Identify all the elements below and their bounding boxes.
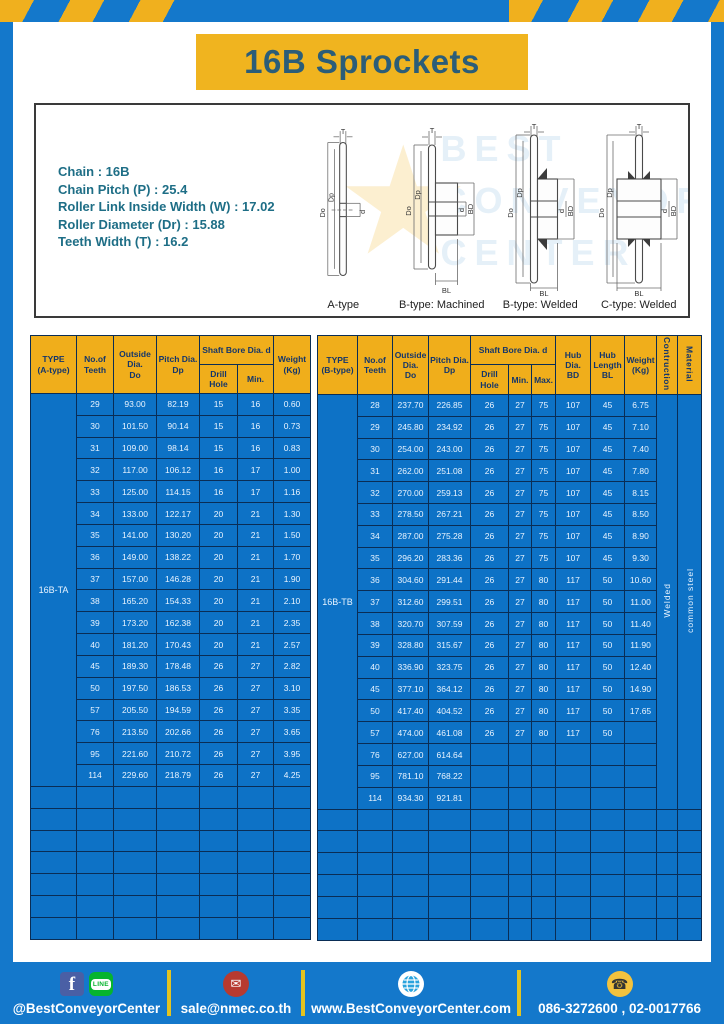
- table-cell: [77, 830, 114, 852]
- table-cell: 194.59: [157, 699, 200, 721]
- table-cell: 21: [238, 568, 274, 590]
- table-cell: [625, 809, 657, 831]
- table-cell: [274, 896, 311, 918]
- table-cell: 45: [358, 678, 393, 700]
- table-cell: [591, 853, 625, 875]
- table-cell: [429, 896, 471, 918]
- table-cell: 117: [556, 656, 591, 678]
- table-cell: 117: [556, 678, 591, 700]
- table-cell: 45: [591, 460, 625, 482]
- table-cell: 45: [591, 482, 625, 504]
- svg-text:Do: Do: [597, 208, 606, 218]
- table-cell: [471, 831, 509, 853]
- svg-text:BD: BD: [566, 205, 575, 216]
- table-cell: 75: [532, 547, 556, 569]
- table-cell: [429, 875, 471, 897]
- table-cell: 45: [591, 525, 625, 547]
- table-cell: 45: [591, 416, 625, 438]
- col-header-min: Min.: [509, 365, 532, 394]
- table-cell: 107: [556, 438, 591, 460]
- table-cell: 474.00: [393, 722, 429, 744]
- svg-text:T: T: [532, 122, 537, 131]
- table-cell: 38: [77, 590, 114, 612]
- table-cell: 16: [200, 481, 238, 503]
- table-cell: 90.14: [157, 415, 200, 437]
- table-cell: 50: [591, 591, 625, 613]
- table-cell: [114, 896, 157, 918]
- table-cell: 26: [471, 613, 509, 635]
- a-type-table-body: 16B-TA2993.0082.1915160.6030101.5090.141…: [31, 394, 311, 940]
- globe-icon: [398, 971, 424, 997]
- footer-divider: [301, 970, 305, 1016]
- table-cell: [157, 874, 200, 896]
- table-cell: 27: [509, 482, 532, 504]
- table-cell: [532, 853, 556, 875]
- table-row: 39328.80315.672627801175011.90: [318, 634, 702, 656]
- table-cell: 50: [591, 722, 625, 744]
- footer-divider: [167, 970, 171, 1016]
- catalog-page: 16B Sprockets ★ BEST CONVEYOR CENTER Cha…: [0, 0, 724, 1024]
- table-cell: 270.00: [393, 482, 429, 504]
- table-cell: [556, 918, 591, 940]
- col-header-teeth: No.of Teeth: [77, 336, 114, 394]
- table-cell: [358, 896, 393, 918]
- table-cell: [238, 808, 274, 830]
- table-cell: 254.00: [393, 438, 429, 460]
- table-cell: 28: [358, 394, 393, 416]
- empty-row: [318, 809, 702, 831]
- table-cell: 117: [556, 569, 591, 591]
- table-cell: [157, 808, 200, 830]
- table-cell: [31, 830, 77, 852]
- table-cell: [274, 874, 311, 896]
- table-cell: 27: [509, 722, 532, 744]
- table-cell: 8.15: [625, 482, 657, 504]
- table-cell: 80: [532, 634, 556, 656]
- col-header-max: Max.: [532, 365, 556, 394]
- table-cell: 117: [556, 591, 591, 613]
- table-cell: 781.10: [393, 765, 429, 787]
- table-cell: 130.20: [157, 524, 200, 546]
- table-cell: 15: [200, 415, 238, 437]
- table-cell: 107: [556, 525, 591, 547]
- table-cell: 2.82: [274, 655, 311, 677]
- empty-row: [31, 808, 311, 830]
- col-header-weight: Weight (Kg): [625, 336, 657, 395]
- table-row: 34287.00275.28262775107458.90: [318, 525, 702, 547]
- b-type-table-header: TYPE (B-type) No.of Teeth Outside Dia. D…: [318, 336, 702, 395]
- table-cell: [358, 831, 393, 853]
- table-cell: 26: [471, 678, 509, 700]
- table-row: 33278.50267.21262775107458.50: [318, 504, 702, 526]
- table-cell: 50: [591, 678, 625, 700]
- table-cell: [471, 918, 509, 940]
- table-cell: 107: [556, 482, 591, 504]
- table-cell: 117: [556, 722, 591, 744]
- table-row: 40336.90323.752627801175012.40: [318, 656, 702, 678]
- table-cell: 259.13: [429, 482, 471, 504]
- table-cell: 45: [591, 438, 625, 460]
- table-cell: 377.10: [393, 678, 429, 700]
- table-cell: 21: [238, 634, 274, 656]
- table-cell: 117: [556, 700, 591, 722]
- table-cell: [200, 786, 238, 808]
- table-cell: 20: [200, 590, 238, 612]
- table-cell: 10.60: [625, 569, 657, 591]
- empty-row: [31, 874, 311, 896]
- table-cell: [625, 918, 657, 940]
- table-cell: [157, 830, 200, 852]
- table-cell: 245.80: [393, 416, 429, 438]
- table-cell: 27: [509, 460, 532, 482]
- table-cell: [31, 852, 77, 874]
- table-cell: 75: [532, 416, 556, 438]
- table-cell: 107: [556, 416, 591, 438]
- table-cell: 26: [471, 547, 509, 569]
- table-cell: 27: [509, 504, 532, 526]
- table-cell: 16: [238, 437, 274, 459]
- table-cell: 2.10: [274, 590, 311, 612]
- table-cell: 133.00: [114, 503, 157, 525]
- construction-label: Welded: [657, 394, 678, 809]
- table-cell: [591, 809, 625, 831]
- facebook-icon: f: [60, 972, 84, 996]
- table-cell: 14.90: [625, 678, 657, 700]
- table-cell: [509, 853, 532, 875]
- table-cell: 0.83: [274, 437, 311, 459]
- table-cell: [532, 787, 556, 809]
- table-cell: 1.00: [274, 459, 311, 481]
- table-cell: [678, 896, 702, 918]
- table-cell: 50: [358, 700, 393, 722]
- svg-text:d: d: [457, 208, 466, 212]
- table-cell: [358, 918, 393, 940]
- table-cell: 109.00: [114, 437, 157, 459]
- table-cell: 39: [358, 634, 393, 656]
- table-cell: 27: [509, 656, 532, 678]
- table-cell: 117: [556, 613, 591, 635]
- table-cell: 229.60: [114, 765, 157, 787]
- table-cell: 27: [509, 416, 532, 438]
- table-cell: 15: [200, 394, 238, 416]
- title-banner: 16B Sprockets: [196, 34, 528, 90]
- table-cell: 80: [532, 678, 556, 700]
- empty-row: [318, 831, 702, 853]
- table-cell: [77, 874, 114, 896]
- table-row: 32270.00259.13262775107458.15: [318, 482, 702, 504]
- table-cell: 27: [238, 655, 274, 677]
- table-cell: 117.00: [114, 459, 157, 481]
- table-cell: 267.21: [429, 504, 471, 526]
- col-header-outside-dia: Outside Dia. Do: [114, 336, 157, 394]
- table-cell: 57: [358, 722, 393, 744]
- table-cell: [358, 809, 393, 831]
- table-cell: [509, 809, 532, 831]
- diagram-b-type-welded: T Do Dp d: [491, 105, 590, 316]
- table-cell: 40: [358, 656, 393, 678]
- hazard-stripe-band: [0, 0, 724, 22]
- col-header-drill-hole: Drill Hole: [200, 365, 238, 394]
- table-cell: 26: [471, 416, 509, 438]
- table-cell: 93.00: [114, 394, 157, 416]
- table-row: 31262.00251.08262775107457.80: [318, 460, 702, 482]
- table-cell: [31, 786, 77, 808]
- table-cell: [31, 917, 77, 939]
- table-cell: 934.30: [393, 787, 429, 809]
- table-cell: 20: [200, 546, 238, 568]
- table-cell: 11.90: [625, 634, 657, 656]
- table-cell: 21: [238, 612, 274, 634]
- svg-text:Do: Do: [506, 208, 515, 218]
- table-cell: 57: [77, 699, 114, 721]
- table-cell: 162.38: [157, 612, 200, 634]
- table-cell: 40: [77, 634, 114, 656]
- svg-text:T: T: [636, 122, 641, 131]
- table-cell: 27: [509, 591, 532, 613]
- table-cell: 76: [77, 721, 114, 743]
- table-cell: 26: [200, 743, 238, 765]
- contact-footer: f LINE @BestConveyorCenter ✉ sale@nmec.c…: [0, 962, 724, 1024]
- b-type-table-body: 16B-TB28237.70226.85262775107456.75Welde…: [318, 394, 702, 940]
- phone-numbers: 086-3272600 , 02-0017766: [538, 1001, 701, 1016]
- empty-row: [318, 896, 702, 918]
- table-cell: [238, 830, 274, 852]
- table-cell: 27: [509, 547, 532, 569]
- table-cell: 26: [471, 591, 509, 613]
- table-cell: 50: [591, 634, 625, 656]
- col-header-type-a: TYPE (A-type): [31, 336, 77, 394]
- svg-text:T: T: [429, 126, 434, 135]
- c-type-welded-drawing-icon: T Do Dp d: [591, 121, 687, 297]
- table-cell: [77, 808, 114, 830]
- svg-text:Dp: Dp: [413, 190, 422, 200]
- table-cell: 39: [77, 612, 114, 634]
- table-row: 76627.00614.64: [318, 744, 702, 766]
- table-cell: 17: [238, 481, 274, 503]
- table-cell: [318, 831, 358, 853]
- table-cell: 320.70: [393, 613, 429, 635]
- table-cell: [157, 896, 200, 918]
- table-cell: [318, 853, 358, 875]
- table-cell: 26: [200, 655, 238, 677]
- table-cell: 291.44: [429, 569, 471, 591]
- table-cell: [114, 917, 157, 939]
- table-cell: [358, 853, 393, 875]
- table-cell: [591, 896, 625, 918]
- caption-b-type-welded: B-type: Welded: [503, 299, 578, 311]
- table-cell: [591, 765, 625, 787]
- table-cell: 107: [556, 460, 591, 482]
- website-url: www.BestConveyorCenter.com: [311, 1001, 511, 1016]
- table-row: 45377.10364.122627801175014.90: [318, 678, 702, 700]
- hazard-stripes-right: [509, 0, 724, 22]
- col-header-hub-dia: Hub Dia. BD: [556, 336, 591, 395]
- table-cell: 26: [471, 656, 509, 678]
- table-cell: 75: [532, 460, 556, 482]
- phone-icon: ☎: [607, 971, 633, 997]
- table-cell: 36: [358, 569, 393, 591]
- spec-teeth-width: Teeth Width (T) : 16.2: [58, 233, 294, 251]
- table-cell: 27: [509, 525, 532, 547]
- table-cell: [509, 918, 532, 940]
- table-cell: [556, 809, 591, 831]
- table-cell: 1.16: [274, 481, 311, 503]
- table-cell: 921.81: [429, 787, 471, 809]
- table-cell: [429, 831, 471, 853]
- table-cell: [318, 918, 358, 940]
- table-cell: 312.60: [393, 591, 429, 613]
- empty-row: [318, 918, 702, 940]
- spec-pitch: Chain Pitch (P) : 25.4: [58, 181, 294, 199]
- table-cell: 262.00: [393, 460, 429, 482]
- table-cell: [200, 896, 238, 918]
- table-cell: [200, 830, 238, 852]
- table-cell: [471, 809, 509, 831]
- table-cell: 186.53: [157, 677, 200, 699]
- table-cell: [471, 896, 509, 918]
- table-cell: [678, 918, 702, 940]
- table-cell: [657, 896, 678, 918]
- table-row: 50417.40404.522627801175017.65: [318, 700, 702, 722]
- table-cell: [532, 765, 556, 787]
- table-cell: 114.15: [157, 481, 200, 503]
- table-cell: [393, 896, 429, 918]
- chain-specs: Chain : 16B Chain Pitch (P) : 25.4 Rolle…: [36, 105, 294, 316]
- table-cell: [274, 852, 311, 874]
- table-cell: 33: [358, 504, 393, 526]
- table-cell: 20: [200, 503, 238, 525]
- table-cell: [77, 786, 114, 808]
- table-cell: [678, 809, 702, 831]
- table-cell: [393, 918, 429, 940]
- col-header-outside-dia: Outside Dia. Do: [393, 336, 429, 395]
- col-header-shaft-bore: Shaft Bore Dia. d: [200, 336, 274, 365]
- table-cell: 287.00: [393, 525, 429, 547]
- table-cell: 95: [358, 765, 393, 787]
- table-row: 95781.10768.22: [318, 765, 702, 787]
- footer-divider: [517, 970, 521, 1016]
- col-header-drill-hole: Drill Hole: [471, 365, 509, 394]
- table-cell: [200, 917, 238, 939]
- table-cell: 210.72: [157, 743, 200, 765]
- type-label: 16B-TB: [318, 394, 358, 809]
- table-cell: 237.70: [393, 394, 429, 416]
- table-cell: 75: [532, 525, 556, 547]
- table-cell: 226.85: [429, 394, 471, 416]
- table-cell: 234.92: [429, 416, 471, 438]
- empty-row: [31, 896, 311, 918]
- table-cell: [509, 787, 532, 809]
- empty-row: [31, 852, 311, 874]
- a-type-table-header: TYPE (A-type) No.of Teeth Outside Dia. D…: [31, 336, 311, 394]
- a-type-table: TYPE (A-type) No.of Teeth Outside Dia. D…: [30, 335, 311, 940]
- svg-text:BL: BL: [540, 289, 549, 297]
- table-cell: [238, 786, 274, 808]
- table-cell: 364.12: [429, 678, 471, 700]
- table-cell: 17.65: [625, 700, 657, 722]
- table-cell: 75: [532, 438, 556, 460]
- table-cell: 251.08: [429, 460, 471, 482]
- table-cell: 45: [591, 547, 625, 569]
- table-cell: 7.10: [625, 416, 657, 438]
- table-cell: 181.20: [114, 634, 157, 656]
- table-cell: 114: [358, 787, 393, 809]
- table-cell: 3.35: [274, 699, 311, 721]
- col-header-pitch-dia: Pitch Dia. Dp: [429, 336, 471, 395]
- sprocket-diagrams: T Do Dp d A-type: [294, 105, 688, 316]
- table-cell: 101.50: [114, 415, 157, 437]
- table-cell: [358, 875, 393, 897]
- table-cell: 122.17: [157, 503, 200, 525]
- table-cell: [678, 831, 702, 853]
- table-cell: [509, 896, 532, 918]
- table-cell: [238, 852, 274, 874]
- col-header-pitch-dia: Pitch Dia. Dp: [157, 336, 200, 394]
- table-cell: [318, 809, 358, 831]
- table-cell: [318, 896, 358, 918]
- table-cell: 2.35: [274, 612, 311, 634]
- table-cell: [532, 809, 556, 831]
- table-cell: [31, 808, 77, 830]
- svg-text:BD: BD: [466, 203, 475, 214]
- table-cell: 80: [532, 591, 556, 613]
- table-cell: [556, 853, 591, 875]
- table-cell: 3.95: [274, 743, 311, 765]
- table-cell: 11.00: [625, 591, 657, 613]
- table-cell: 299.51: [429, 591, 471, 613]
- svg-text:d: d: [359, 210, 367, 214]
- table-cell: [274, 917, 311, 939]
- table-cell: 29: [77, 394, 114, 416]
- table-cell: [471, 787, 509, 809]
- table-cell: 283.36: [429, 547, 471, 569]
- table-cell: [532, 875, 556, 897]
- table-cell: 32: [358, 482, 393, 504]
- table-cell: 36: [77, 546, 114, 568]
- table-cell: 26: [471, 460, 509, 482]
- table-cell: 27: [238, 721, 274, 743]
- table-cell: 0.60: [274, 394, 311, 416]
- table-cell: 27: [238, 677, 274, 699]
- table-cell: [393, 809, 429, 831]
- caption-c-type-welded: C-type: Welded: [601, 299, 677, 311]
- table-cell: [532, 896, 556, 918]
- a-type-drawing-icon: T Do Dp d: [305, 121, 381, 297]
- table-row: 36304.60291.442627801175010.60: [318, 569, 702, 591]
- empty-row: [31, 786, 311, 808]
- line-icon: LINE: [89, 972, 113, 996]
- table-cell: 296.20: [393, 547, 429, 569]
- table-cell: 98.14: [157, 437, 200, 459]
- table-cell: [678, 875, 702, 897]
- table-cell: 26: [471, 569, 509, 591]
- svg-text:Do: Do: [404, 206, 413, 216]
- table-cell: [114, 808, 157, 830]
- empty-row: [318, 875, 702, 897]
- table-cell: [591, 744, 625, 766]
- table-cell: [31, 896, 77, 918]
- table-cell: [657, 875, 678, 897]
- table-cell: 4.25: [274, 765, 311, 787]
- table-row: 57474.00461.0826278011750: [318, 722, 702, 744]
- table-cell: [657, 918, 678, 940]
- table-cell: 417.40: [393, 700, 429, 722]
- table-cell: 189.30: [114, 655, 157, 677]
- table-cell: 307.59: [429, 613, 471, 635]
- table-cell: 7.80: [625, 460, 657, 482]
- table-cell: 80: [532, 569, 556, 591]
- col-header-shaft-bore: Shaft Bore Dia. d: [471, 336, 556, 365]
